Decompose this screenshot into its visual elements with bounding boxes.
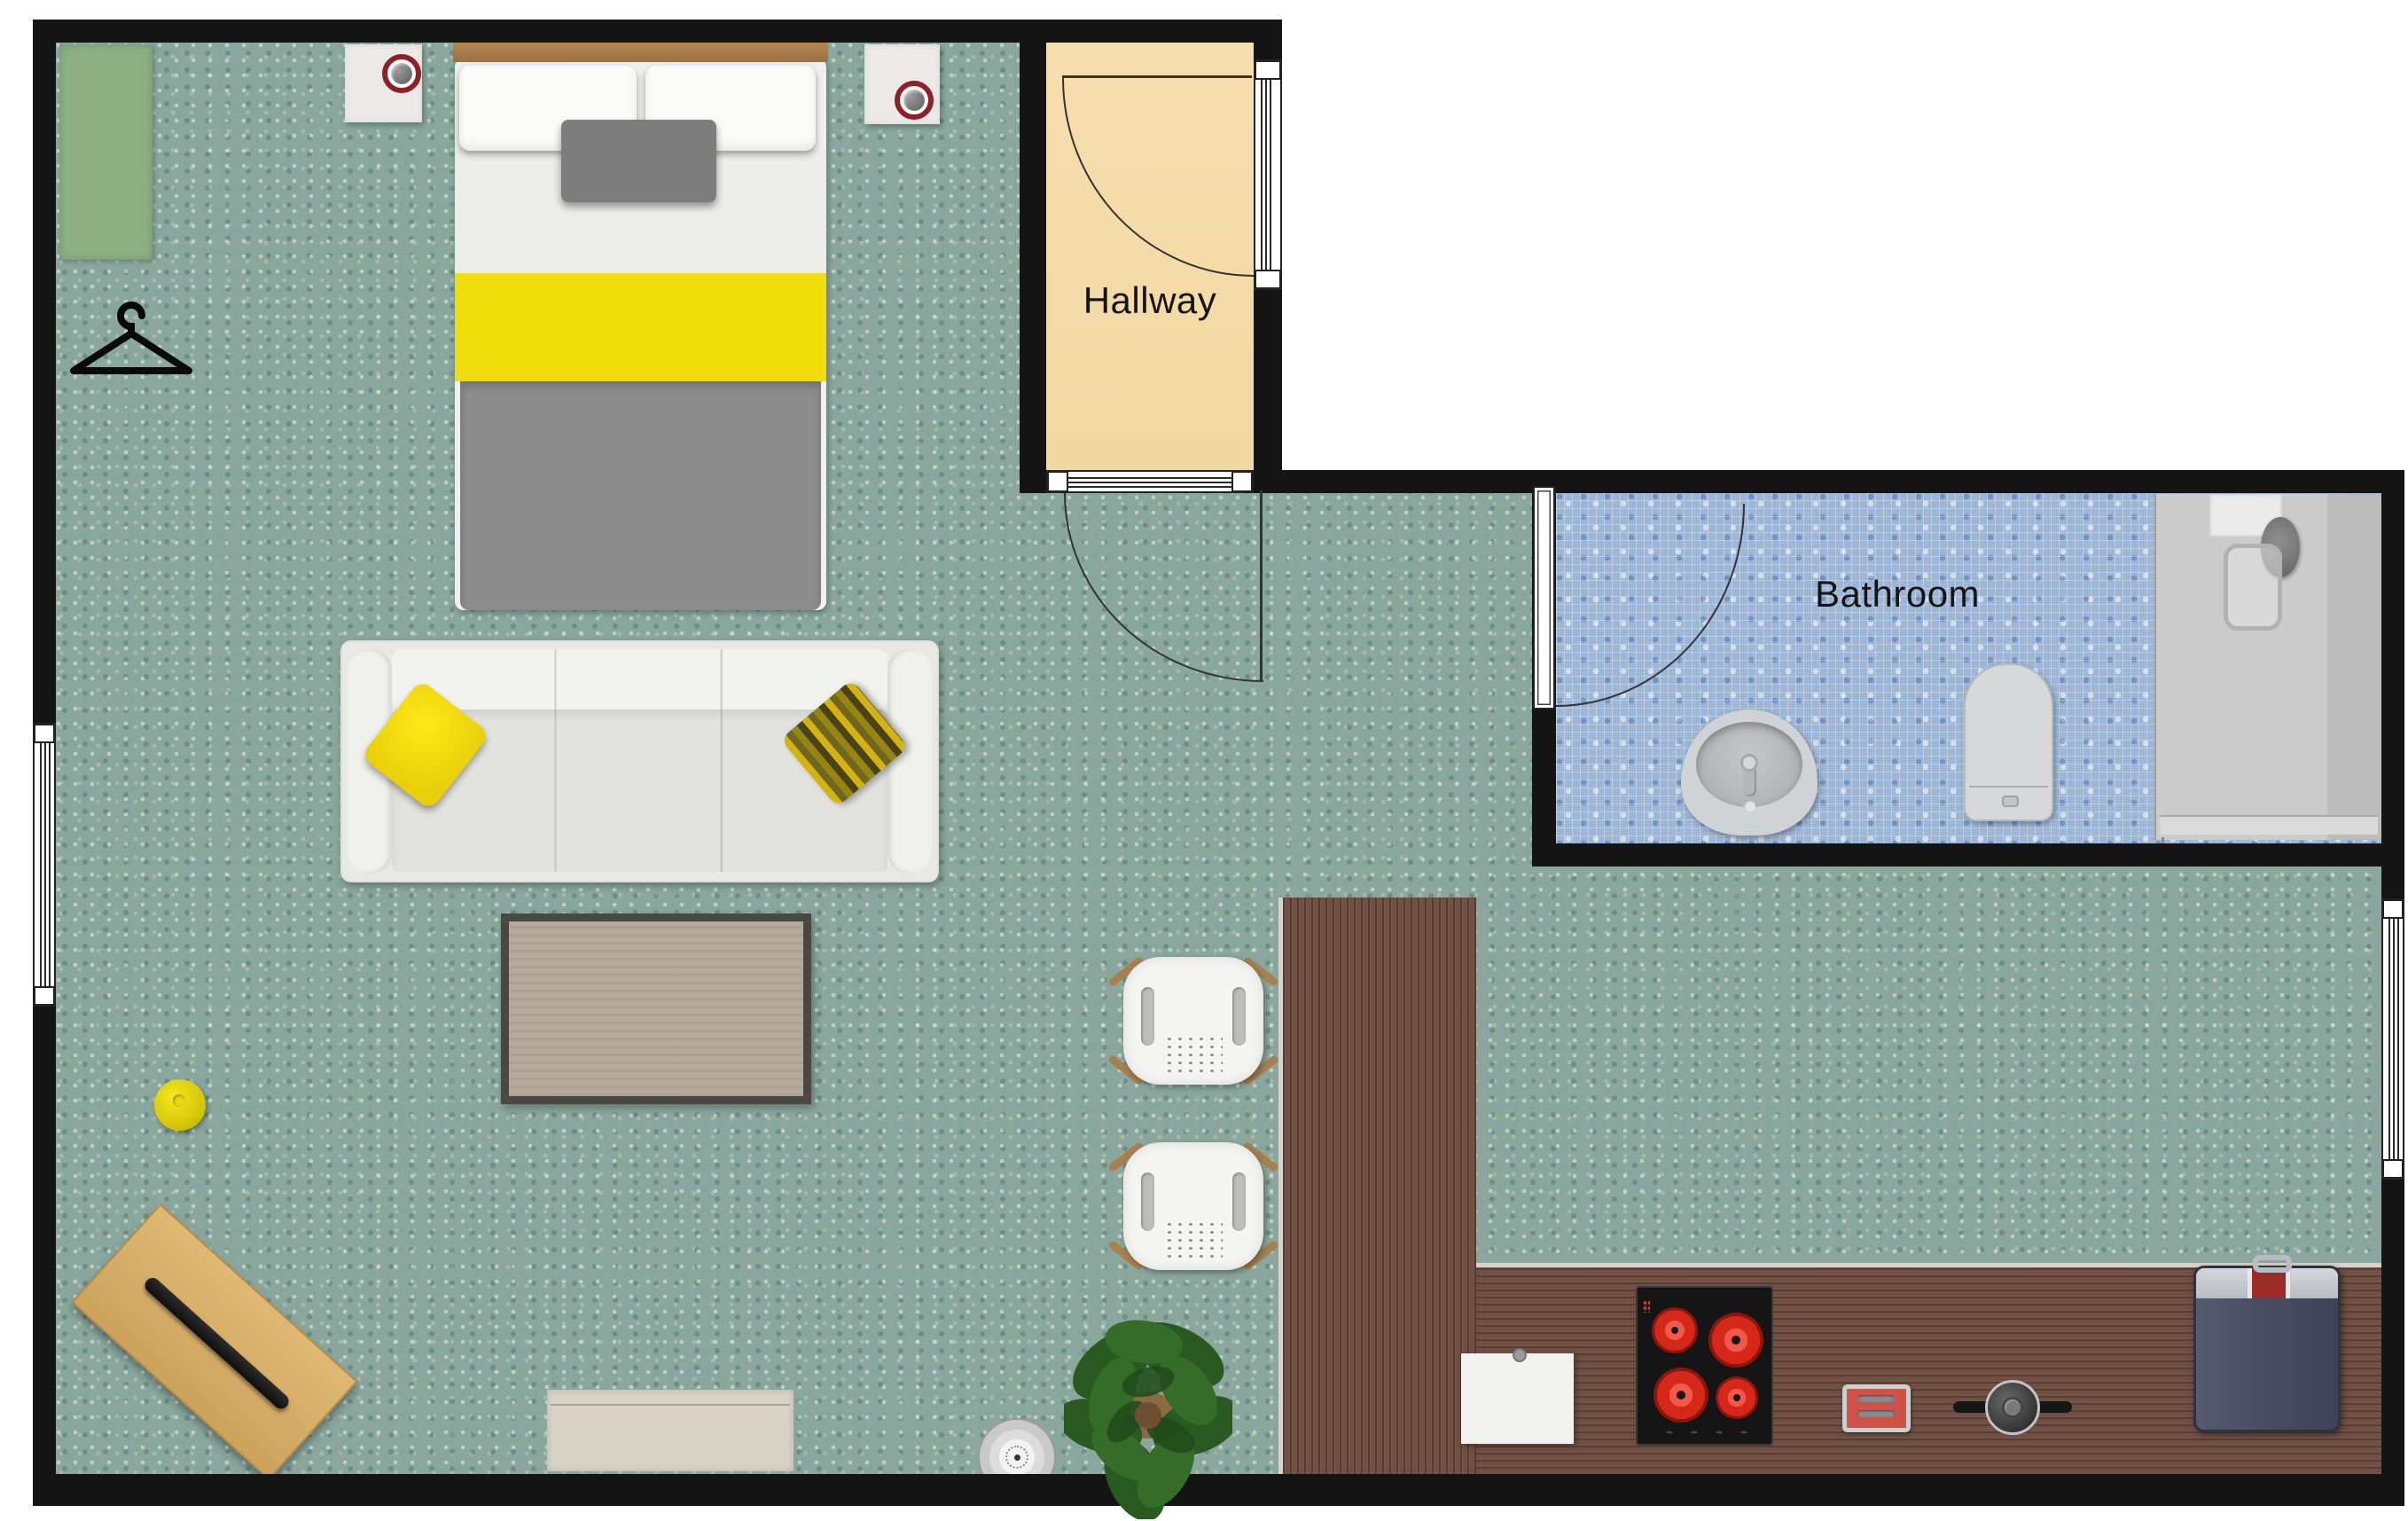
sofa-armrest [887,649,932,874]
nightstand-left [345,44,422,122]
chair-perforation [1164,1220,1223,1258]
wall-hallway-right-upper [1254,20,1282,59]
wall-left-upper [33,20,56,723]
clothes-hanger-icon [66,300,195,380]
burner [1716,1376,1758,1419]
shower-enclosure [2154,494,2381,840]
wall-hallway-left [1020,20,1046,493]
chair-slot [1232,1172,1246,1231]
sink-faucet [1744,764,1755,795]
chair-perforation [1164,1035,1223,1072]
outside-area [1282,0,2408,470]
cooktop-indicator [1643,1300,1650,1313]
sofa-back-cushions [392,649,887,710]
bathroom-label: Bathroom [1764,573,2030,615]
cooktop-controls [1657,1428,1755,1437]
burner [1652,1307,1698,1353]
wardrobe [59,44,152,260]
kitchen-counter-island [1278,898,1476,1497]
coffee-table [501,913,811,1104]
shower-tray [2224,544,2282,631]
nightstand-right [864,44,940,124]
table-lamp-icon [382,54,421,93]
wall-hallway-right-lower [1254,290,1282,493]
wall-kitchen-top [1282,470,2404,493]
bed-gray-blanket [460,381,821,610]
window-hallway-entry [1254,59,1282,290]
wall-top [33,20,1282,43]
door-mat [547,1390,794,1471]
bar-chair-1 [1118,955,1269,1086]
wall-bathroom-bottom [1532,843,2404,866]
floor-plan: Hallway Bathroom [0,0,2408,1521]
hallway-label: Hallway [1046,279,1254,322]
wall-left-lower [33,1007,56,1506]
bar-chair-2 [1118,1141,1269,1272]
chair-slot [1141,1172,1154,1231]
shower-drain [2160,815,2378,835]
suitcase [2193,1266,2341,1432]
kitchen-sink-cabinet [1461,1353,1574,1444]
chair-slot [1232,987,1246,1046]
bed-headboard [453,43,828,62]
sofa [340,640,939,882]
wall-right-upper [2381,470,2404,898]
toaster [1842,1384,1911,1432]
wall-right-lower [2381,1180,2404,1506]
hallway-threshold [1046,470,1254,493]
chair-slot [1141,987,1154,1046]
window-right-wall [2381,898,2404,1180]
cooktop [1636,1286,1773,1446]
suitcase-handle [2253,1255,2292,1273]
window-left-wall [33,723,56,1007]
table-lamp-icon [895,81,934,120]
suitcase-red-stripe [2248,1268,2290,1298]
burner [1654,1368,1708,1423]
bed-accent-pillow [561,120,716,202]
double-bed [453,43,828,612]
potted-plant [1064,1302,1232,1519]
burner [1708,1313,1763,1368]
yellow-knob [154,1079,206,1131]
toilet [1964,663,2053,821]
bed-yellow-blanket [455,273,826,381]
cooking-pot [1985,1380,2040,1435]
bathroom-door-leaf [1533,486,1555,710]
